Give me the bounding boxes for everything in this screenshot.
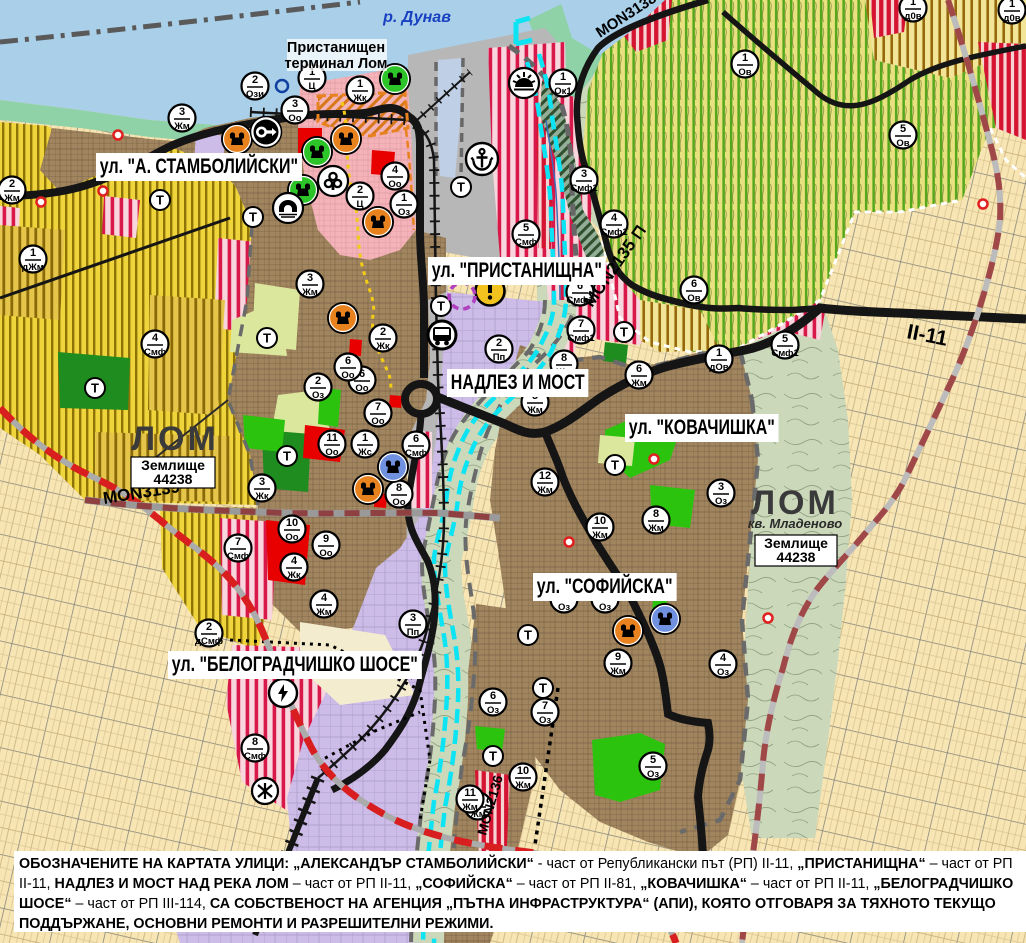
svg-text:10: 10 [594, 515, 606, 527]
svg-text:4: 4 [291, 555, 298, 567]
svg-text:Т: Т [611, 458, 619, 473]
svg-text:8: 8 [653, 508, 659, 520]
svg-text:1: 1 [716, 347, 722, 359]
svg-text:3: 3 [292, 98, 298, 110]
svg-text:6: 6 [490, 690, 496, 702]
svg-text:дЖм: дЖм [22, 262, 44, 273]
svg-text:Ц: Ц [357, 199, 364, 210]
svg-text:6: 6 [636, 363, 642, 375]
svg-text:11: 11 [464, 787, 476, 799]
svg-text:2: 2 [357, 184, 363, 196]
svg-text:Жм: Жм [536, 485, 553, 496]
svg-text:1: 1 [401, 192, 407, 204]
svg-text:Т: Т [539, 681, 547, 696]
svg-text:Жм: Жм [514, 780, 531, 791]
svg-text:Смф: Смф [405, 448, 427, 459]
svg-text:ЛОМ: ЛОМ [131, 420, 219, 458]
svg-text:Жм: Жм [591, 530, 608, 541]
svg-text:Жм: Жм [315, 607, 332, 618]
svg-text:Оз: Оз [599, 602, 611, 613]
svg-text:Жс: Жс [357, 447, 372, 458]
svg-text:Смф1: Смф1 [771, 348, 799, 359]
svg-text:44238: 44238 [154, 471, 193, 487]
svg-text:Т: Т [457, 180, 465, 195]
svg-text:Оз: Оз [647, 769, 659, 780]
svg-text:Смф: Смф [144, 347, 166, 358]
svg-text:4: 4 [392, 164, 399, 176]
svg-text:Жм: Жм [609, 666, 626, 677]
svg-text:Пп: Пп [407, 627, 420, 638]
svg-text:Жм: Жм [173, 121, 190, 132]
svg-text:5: 5 [782, 333, 788, 345]
svg-text:2: 2 [315, 375, 321, 387]
svg-text:Оз: Оз [715, 496, 727, 507]
svg-text:Оо: Оо [371, 416, 384, 427]
svg-text:Жм: Жм [461, 802, 478, 813]
svg-text:Ов: Ов [687, 293, 700, 304]
svg-text:Смф: Смф [227, 551, 249, 562]
svg-text:Т: Т [156, 193, 164, 208]
svg-text:5: 5 [900, 123, 906, 135]
svg-text:7: 7 [375, 401, 381, 413]
svg-text:Ов: Ов [738, 67, 751, 78]
svg-text:1: 1 [560, 71, 566, 83]
svg-text:2: 2 [252, 74, 258, 86]
svg-text:Пп: Пп [493, 352, 506, 363]
svg-text:3: 3 [581, 168, 587, 180]
svg-text:Т: Т [91, 381, 99, 396]
svg-text:Оо: Оо [319, 548, 332, 559]
svg-text:Т: Т [437, 299, 445, 314]
svg-text:8: 8 [561, 352, 567, 364]
svg-text:4: 4 [720, 652, 727, 664]
svg-text:Т: Т [283, 449, 291, 464]
svg-text:6: 6 [345, 355, 351, 367]
svg-text:3: 3 [259, 476, 265, 488]
svg-text:1: 1 [357, 78, 363, 90]
svg-text:8: 8 [252, 736, 258, 748]
svg-text:7: 7 [235, 536, 241, 548]
svg-text:д0в: д0в [904, 11, 921, 22]
svg-text:Оз: Оз [398, 207, 410, 218]
svg-text:2: 2 [9, 178, 15, 190]
svg-text:Т: Т [524, 628, 532, 643]
svg-text:Жм: Жм [301, 287, 318, 298]
svg-text:1: 1 [362, 432, 368, 444]
svg-text:3: 3 [179, 106, 185, 118]
svg-text:5: 5 [650, 754, 656, 766]
svg-text:Смф: Смф [244, 751, 266, 762]
svg-text:Оо: Оо [392, 497, 405, 508]
svg-text:Жм: Жм [630, 378, 647, 389]
svg-text:4: 4 [321, 592, 328, 604]
svg-text:9: 9 [323, 533, 329, 545]
svg-text:4: 4 [611, 212, 618, 224]
svg-text:Жм: Жм [647, 523, 664, 534]
svg-text:12: 12 [539, 470, 551, 482]
svg-text:Оз: Оз [487, 705, 499, 716]
svg-text:Оз: Оз [717, 667, 729, 678]
svg-text:10: 10 [517, 765, 529, 777]
svg-text:Т: Т [620, 325, 628, 340]
svg-text:8: 8 [396, 482, 402, 494]
svg-text:Смф1: Смф1 [570, 183, 598, 194]
svg-text:Ок1: Ок1 [554, 86, 572, 97]
svg-text:2: 2 [206, 621, 212, 633]
svg-text:Жм: Жм [526, 405, 543, 416]
svg-text:6: 6 [691, 278, 697, 290]
svg-text:1: 1 [742, 52, 748, 64]
svg-text:2: 2 [380, 326, 386, 338]
svg-text:3: 3 [410, 612, 416, 624]
svg-text:Пристанищен: Пристанищен [287, 40, 385, 56]
svg-text:Оз: Оз [539, 715, 551, 726]
svg-text:10: 10 [286, 517, 298, 529]
svg-text:6: 6 [413, 433, 419, 445]
svg-text:дОв: дОв [709, 362, 728, 373]
svg-text:Оз: Оз [312, 390, 324, 401]
svg-text:Жм: Жм [3, 193, 20, 204]
svg-text:Жк: Жк [286, 570, 301, 581]
svg-text:Оз: Оз [558, 602, 570, 613]
svg-text:7: 7 [542, 700, 548, 712]
svg-text:Оо: Оо [325, 447, 338, 458]
svg-text:3: 3 [307, 272, 313, 284]
svg-text:Жк: Жк [254, 491, 269, 502]
svg-text:4: 4 [152, 332, 159, 344]
svg-text:1: 1 [910, 0, 916, 8]
svg-text:Оо: Оо [285, 532, 298, 543]
svg-text:1: 1 [1009, 0, 1015, 10]
svg-text:Жк: Жк [352, 93, 367, 104]
svg-text:Ози: Ози [246, 89, 264, 100]
svg-text:кв. Младеново: кв. Младеново [748, 516, 842, 531]
svg-text:Оо: Оо [288, 113, 301, 124]
svg-text:Т: Т [249, 210, 257, 225]
svg-text:Жк: Жк [375, 341, 390, 352]
svg-text:Ц: Ц [309, 81, 316, 92]
svg-text:Ов: Ов [896, 138, 909, 149]
svg-text:д0в: д0в [1003, 13, 1020, 24]
svg-text:11: 11 [326, 432, 338, 444]
svg-text:р. Дунав: р. Дунав [382, 9, 451, 26]
svg-text:9: 9 [615, 651, 621, 663]
svg-text:Оо: Оо [355, 383, 368, 394]
svg-text:дСмф: дСмф [195, 636, 223, 647]
svg-text:Оо: Оо [341, 370, 354, 381]
svg-text:Т: Т [489, 749, 497, 764]
svg-text:3: 3 [718, 481, 724, 493]
svg-text:2: 2 [496, 337, 502, 349]
svg-text:Смф: Смф [515, 237, 537, 248]
svg-text:Смф1: Смф1 [567, 333, 595, 344]
svg-text:Оо: Оо [388, 179, 401, 190]
svg-text:7: 7 [578, 318, 584, 330]
svg-text:1: 1 [30, 247, 36, 259]
svg-text:Т: Т [263, 331, 271, 346]
svg-text:44238: 44238 [777, 549, 816, 565]
svg-text:5: 5 [523, 222, 529, 234]
svg-text:терминал Лом: терминал Лом [284, 56, 387, 72]
